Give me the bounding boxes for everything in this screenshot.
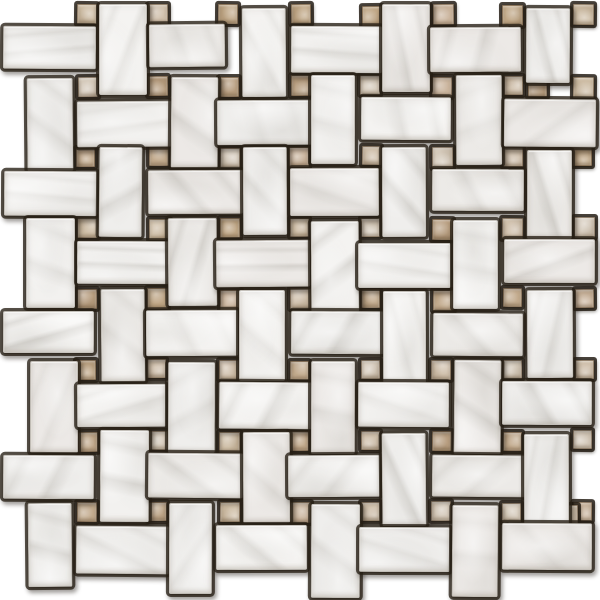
dot-tile [76, 148, 95, 167]
marble-tile-horizontal [77, 384, 166, 428]
marble-tile-horizontal [149, 24, 225, 68]
dot-tile [361, 146, 380, 165]
marble-tile-horizontal [432, 454, 527, 497]
marble-tile-horizontal [502, 381, 593, 426]
marble-tile-vertical [171, 77, 219, 169]
marble-tile-horizontal [77, 100, 172, 147]
dot-tile [573, 147, 592, 166]
dot-tile [149, 219, 170, 240]
marble-tile-horizontal [4, 171, 97, 216]
dot-tile [77, 217, 98, 238]
marble-tile-horizontal [432, 168, 525, 211]
marble-tile-vertical [27, 503, 71, 587]
marble-tile-vertical [526, 8, 571, 83]
marble-tile-vertical [169, 503, 212, 595]
marble-tile-vertical [452, 505, 498, 597]
marble-tile-horizontal [146, 310, 239, 356]
marble-tile-horizontal [3, 455, 94, 500]
dot-tile [361, 502, 380, 521]
dot-tile [504, 76, 523, 95]
dot-tile [361, 360, 380, 379]
dot-tile [149, 431, 168, 450]
marble-tile-vertical [26, 218, 75, 308]
marble-tile-vertical [168, 362, 216, 453]
marble-tile-horizontal [502, 523, 592, 570]
marble-tile-vertical [453, 359, 501, 453]
marble-tile-vertical [453, 220, 498, 309]
marble-tile-vertical [30, 361, 78, 453]
dot-tile [290, 218, 309, 237]
marble-tile-horizontal [148, 453, 243, 498]
dot-tile [575, 289, 594, 308]
marble-tile-horizontal [359, 527, 450, 572]
dot-tile [575, 359, 595, 379]
marble-tile-vertical [311, 503, 360, 597]
marble-tile-vertical [311, 361, 356, 454]
marble-tile-vertical [383, 291, 426, 383]
marble-tile-vertical [523, 434, 568, 526]
marble-tile-horizontal [290, 168, 379, 216]
dot-tile [502, 503, 521, 522]
dot-tile [77, 289, 98, 310]
dot-tile [219, 77, 239, 97]
dot-tile [289, 431, 309, 451]
marble-tile-vertical [382, 4, 430, 92]
dot-tile [219, 432, 240, 453]
dot-tile [362, 6, 382, 26]
marble-tile-vertical [242, 432, 290, 523]
dot-tile [76, 360, 96, 380]
marble-tile-horizontal [504, 239, 595, 283]
marble-tile-horizontal [432, 313, 522, 356]
dot-tile [503, 360, 522, 379]
dot-tile [148, 502, 167, 521]
marble-tile-vertical [100, 430, 150, 522]
dot-tile [147, 288, 168, 309]
dot-tile [361, 218, 380, 237]
marble-tile-horizontal [430, 27, 521, 72]
marble-tile-horizontal [219, 382, 313, 430]
marble-tile-vertical [527, 150, 572, 239]
marble-tile-vertical [239, 290, 285, 381]
dot-tile [220, 290, 241, 311]
marble-tile-vertical [98, 147, 142, 238]
marble-tile-vertical [99, 4, 147, 95]
marble-tile-horizontal [216, 525, 307, 571]
dot-tile [147, 359, 166, 378]
dot-tile [503, 147, 523, 167]
dot-tile [218, 4, 238, 24]
marble-tile-horizontal [288, 455, 380, 497]
dot-tile [433, 290, 454, 311]
marble-tile-vertical [26, 78, 73, 172]
dot-tile [573, 4, 594, 25]
dot-tile [220, 502, 240, 522]
marble-tile-horizontal [3, 25, 96, 69]
basketweave-mosaic-photo [0, 0, 600, 600]
marble-tile-vertical [310, 221, 358, 312]
marble-tile-vertical [526, 290, 573, 378]
dot-tile [289, 147, 309, 167]
dot-tile [361, 431, 380, 450]
dot-tile [574, 217, 595, 238]
dot-tile [291, 75, 312, 96]
dot-tile [220, 147, 240, 167]
marble-tile-horizontal [358, 243, 451, 288]
marble-tile-vertical [382, 147, 426, 237]
marble-tile-horizontal [217, 100, 312, 146]
dot-tile [360, 75, 380, 95]
marble-tile-vertical [455, 75, 502, 165]
marble-tile-horizontal [216, 240, 310, 288]
dot-tile [432, 147, 453, 168]
marble-tile-vertical [168, 217, 218, 305]
dot-tile [220, 218, 240, 238]
dot-tile [290, 361, 309, 380]
dot-tile [502, 5, 523, 26]
dot-tile [573, 430, 592, 449]
dot-tile [289, 288, 310, 309]
marble-tile-horizontal [76, 525, 169, 574]
marble-tile-horizontal [148, 170, 243, 215]
dot-tile [431, 501, 451, 521]
dot-tile [433, 4, 454, 25]
dot-tile [78, 432, 98, 452]
marble-tile-horizontal [77, 241, 172, 284]
dot-tile [502, 218, 523, 239]
dot-tile [78, 77, 98, 97]
dot-tile [502, 288, 522, 308]
marble-tile-horizontal [290, 25, 382, 73]
dot-tile [432, 431, 452, 451]
dot-tile [361, 289, 380, 308]
dot-tile [432, 219, 453, 240]
dot-tile [432, 77, 453, 98]
dot-tile [573, 77, 594, 98]
marble-tile-horizontal [358, 382, 449, 427]
marble-tile-horizontal [291, 311, 384, 354]
dot-tile [77, 4, 98, 25]
marble-tile-horizontal [361, 97, 451, 140]
marble-tile-vertical [101, 289, 146, 382]
dot-tile [148, 4, 169, 25]
dot-tile [291, 4, 311, 24]
marble-tile-vertical [241, 8, 285, 97]
marble-tile-vertical [243, 147, 287, 235]
dot-tile [290, 502, 311, 523]
dot-tile [219, 360, 239, 380]
marble-tile-horizontal [504, 99, 596, 148]
dot-tile [148, 76, 168, 96]
dot-tile [431, 360, 451, 380]
dot-tile [76, 502, 96, 522]
marble-tile-horizontal [3, 311, 94, 353]
marble-tile-vertical [310, 75, 354, 164]
dot-tile [503, 432, 522, 451]
marble-tile-vertical [382, 433, 427, 527]
dot-tile [149, 146, 169, 166]
